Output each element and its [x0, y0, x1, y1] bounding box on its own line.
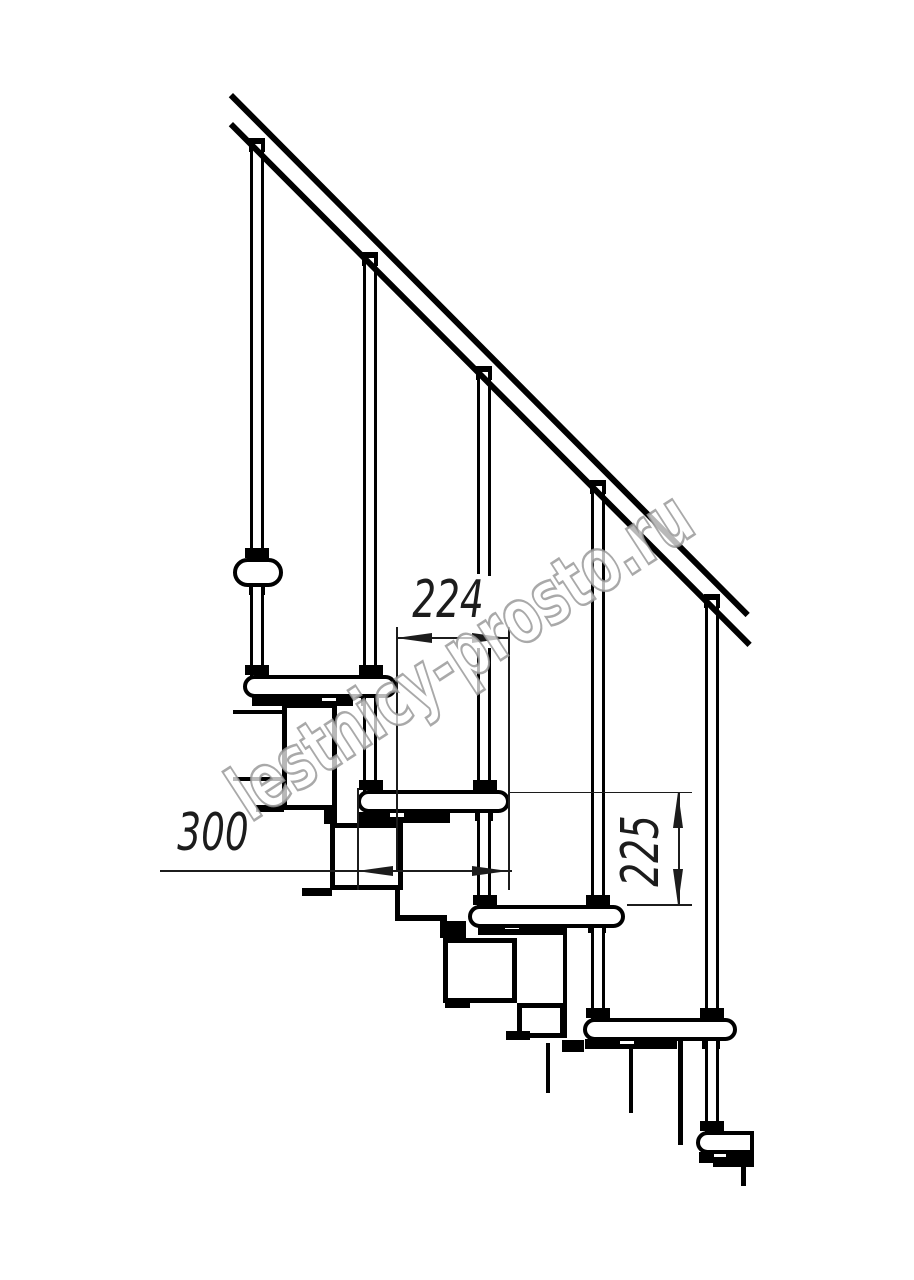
cut-line-3: [678, 1040, 683, 1145]
tread5-bracket: [562, 1040, 584, 1052]
cut-line-2: [629, 1047, 633, 1113]
arrowhead-225-down: [673, 869, 683, 905]
baluster1-collar-upper: [245, 548, 269, 558]
module3b-foot: [506, 1031, 530, 1040]
module3-foot: [445, 1001, 470, 1008]
baluster-5: [705, 600, 719, 1135]
dim-label-300: 300: [174, 807, 253, 859]
baluster3-collar-base: [473, 895, 497, 905]
tread6-lower-line: [713, 1163, 754, 1167]
staircase-technical-drawing: 224 300 225 lestnicy-prosto.ru: [0, 0, 914, 1280]
dim-line-300: [160, 870, 512, 872]
dim-label-225: 225: [615, 812, 667, 891]
baluster5-collar-pass: [700, 1008, 724, 1018]
baluster-1: [250, 144, 264, 680]
baluster4-collar-pass: [586, 895, 610, 905]
module3-bracket: [440, 921, 466, 938]
arrowhead-300-left: [357, 866, 393, 876]
tread-6-cut: [696, 1131, 754, 1154]
arrowhead-225-up: [673, 792, 683, 828]
baluster1-collar-base: [245, 665, 269, 675]
site-watermark: lestnicy-prosto.ru: [212, 472, 709, 838]
spine-module-3: [443, 938, 517, 1003]
arrowhead-300-right: [472, 866, 508, 876]
spine-module-2: [330, 823, 403, 890]
tread-4: [468, 905, 625, 928]
baluster2-collar-base: [359, 780, 383, 790]
baluster3-collar-pass: [473, 780, 497, 790]
landing-cut-line-top: [233, 710, 284, 714]
baluster5-collar-base: [700, 1121, 724, 1131]
baluster4-collar-base: [586, 1008, 610, 1018]
upper-flight-tread-end-view: [233, 558, 283, 587]
module1-2-connector: [324, 808, 337, 824]
tread-5: [583, 1018, 737, 1041]
module2-foot: [302, 888, 332, 896]
tread-3: [357, 790, 510, 813]
tread6-lower-cut-line: [741, 1167, 746, 1186]
cut-line-1: [546, 1043, 550, 1093]
ext-line-rise-top: [508, 792, 692, 794]
